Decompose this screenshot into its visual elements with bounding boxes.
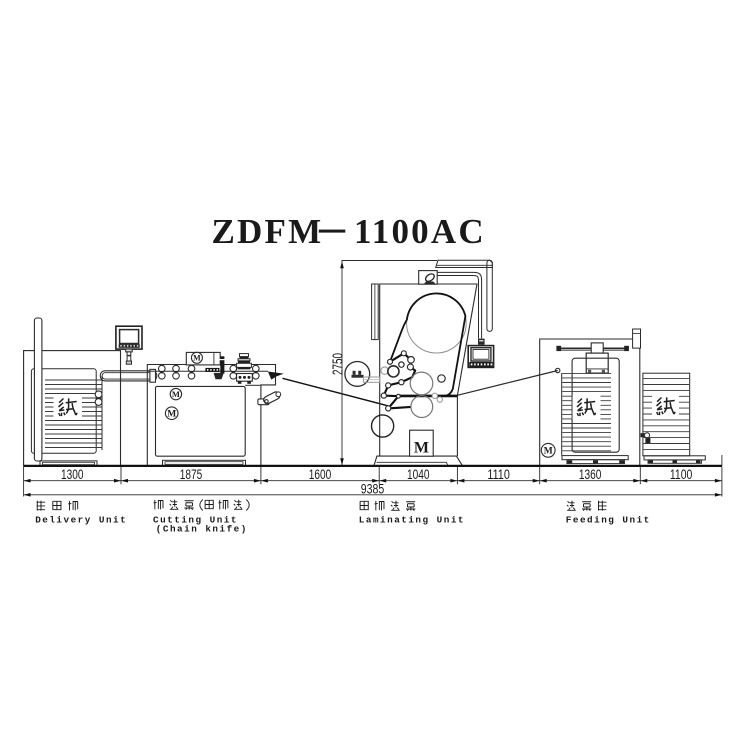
svg-text:1110: 1110	[487, 467, 510, 482]
svg-text:1040: 1040	[407, 467, 430, 482]
svg-text:M: M	[544, 447, 553, 457]
svg-text:M: M	[193, 354, 201, 363]
svg-text:Delivery Unit: Delivery Unit	[35, 514, 127, 525]
svg-text:Laminating Unit: Laminating Unit	[359, 514, 465, 525]
svg-text:M: M	[172, 389, 180, 399]
svg-text:1100: 1100	[670, 467, 693, 482]
svg-text:ZDFM: ZDFM	[212, 212, 324, 251]
svg-text:1300: 1300	[61, 467, 84, 482]
svg-text:9385: 9385	[361, 481, 385, 496]
svg-text:Feeding Unit: Feeding Unit	[566, 514, 651, 525]
svg-text:2750: 2750	[331, 353, 347, 375]
svg-text:1875: 1875	[180, 467, 203, 482]
svg-text:(Chain knife): (Chain knife)	[156, 523, 248, 534]
svg-text:M: M	[167, 410, 176, 420]
svg-text:1100AC: 1100AC	[354, 212, 486, 251]
svg-text:1600: 1600	[309, 467, 332, 482]
svg-text:1360: 1360	[579, 467, 602, 482]
svg-text:M: M	[414, 440, 429, 457]
